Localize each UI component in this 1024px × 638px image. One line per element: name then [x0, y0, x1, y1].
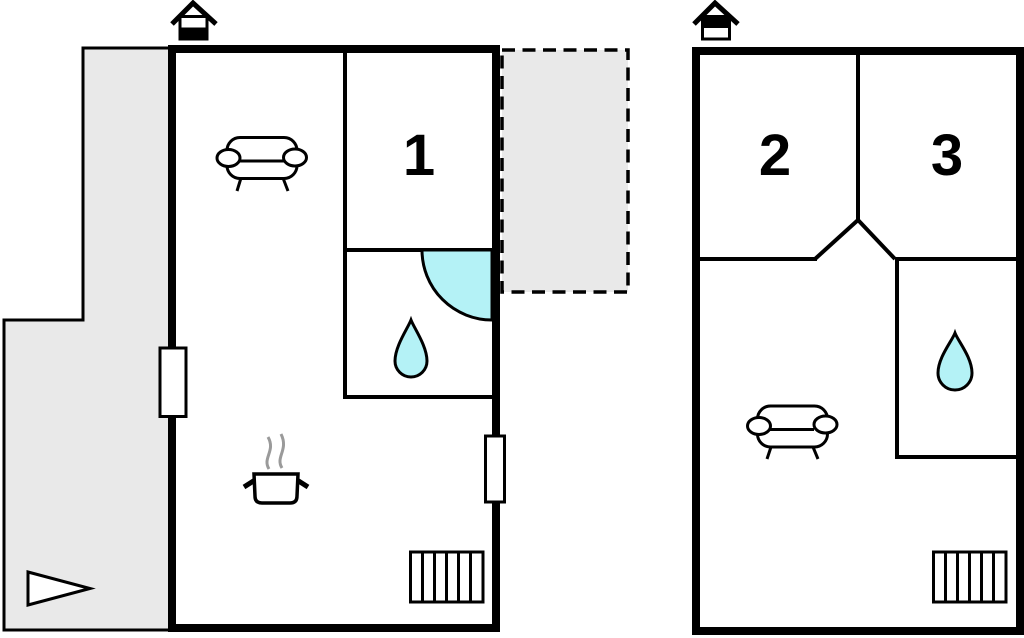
- room-label-2: 2: [759, 123, 791, 188]
- patio-area: [4, 48, 172, 630]
- stairs-icon: [934, 552, 1007, 602]
- window: [486, 436, 505, 502]
- upper-floor-unit: 2 3: [694, 3, 1020, 631]
- terrace-dashed-area: [502, 50, 628, 292]
- chimney-icon: [694, 3, 738, 39]
- stairs-icon: [411, 552, 484, 602]
- room-label-3: 3: [931, 123, 963, 188]
- chimney-icon: [172, 3, 216, 39]
- window: [160, 348, 186, 417]
- exterior-wall: [172, 49, 496, 628]
- ground-floor-unit: 1: [4, 3, 628, 630]
- room-label-1: 1: [403, 123, 435, 188]
- floorplan: 1: [0, 0, 1024, 638]
- floorplan-canvas: 1: [0, 0, 1024, 638]
